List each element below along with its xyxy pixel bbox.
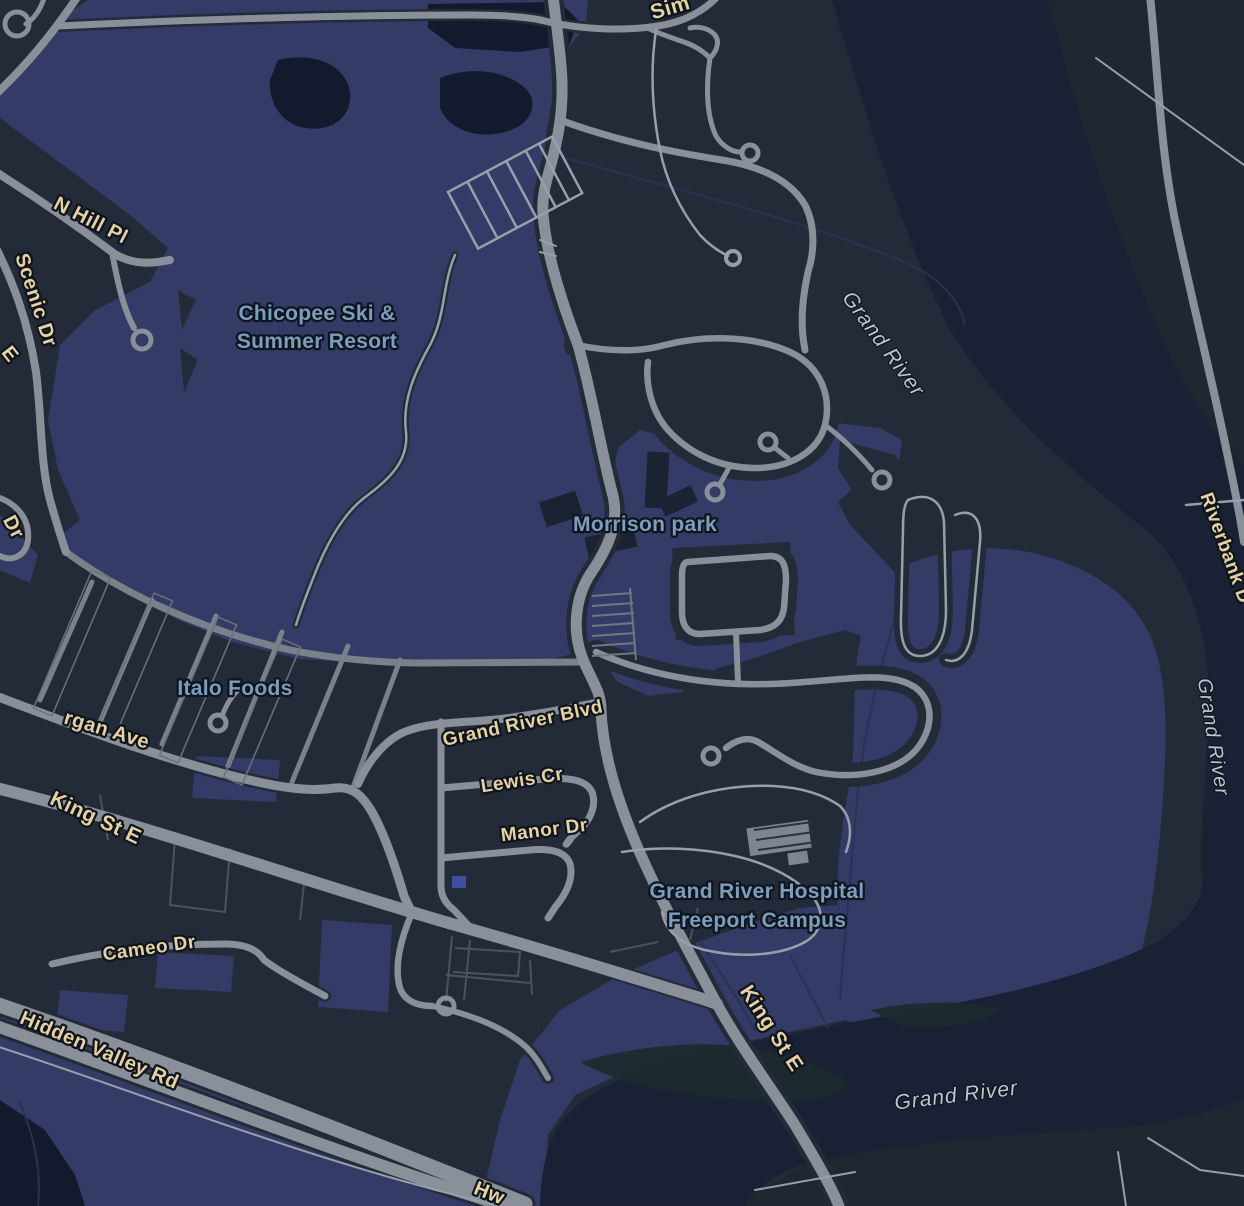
small-lot-highlight	[452, 876, 466, 888]
poi-label-chicopee-line1[interactable]: Chicopee Ski &	[238, 302, 395, 325]
poi-label-italo-foods[interactable]: Italo Foods	[177, 677, 292, 700]
map-canvas[interactable]: Sim N Hill Pl Scenic Dr E Dr rgan Ave Gr…	[0, 0, 1244, 1206]
poi-label-hospital-line1[interactable]: Grand River Hospital	[650, 880, 865, 903]
map-svg[interactable]: Sim N Hill Pl Scenic Dr E Dr rgan Ave Gr…	[0, 0, 1244, 1206]
poi-label-hospital-line2[interactable]: Freeport Campus	[668, 909, 846, 932]
poi-label-chicopee-line2[interactable]: Summer Resort	[237, 330, 397, 353]
poi-label-morrison-park[interactable]: Morrison park	[573, 513, 717, 536]
